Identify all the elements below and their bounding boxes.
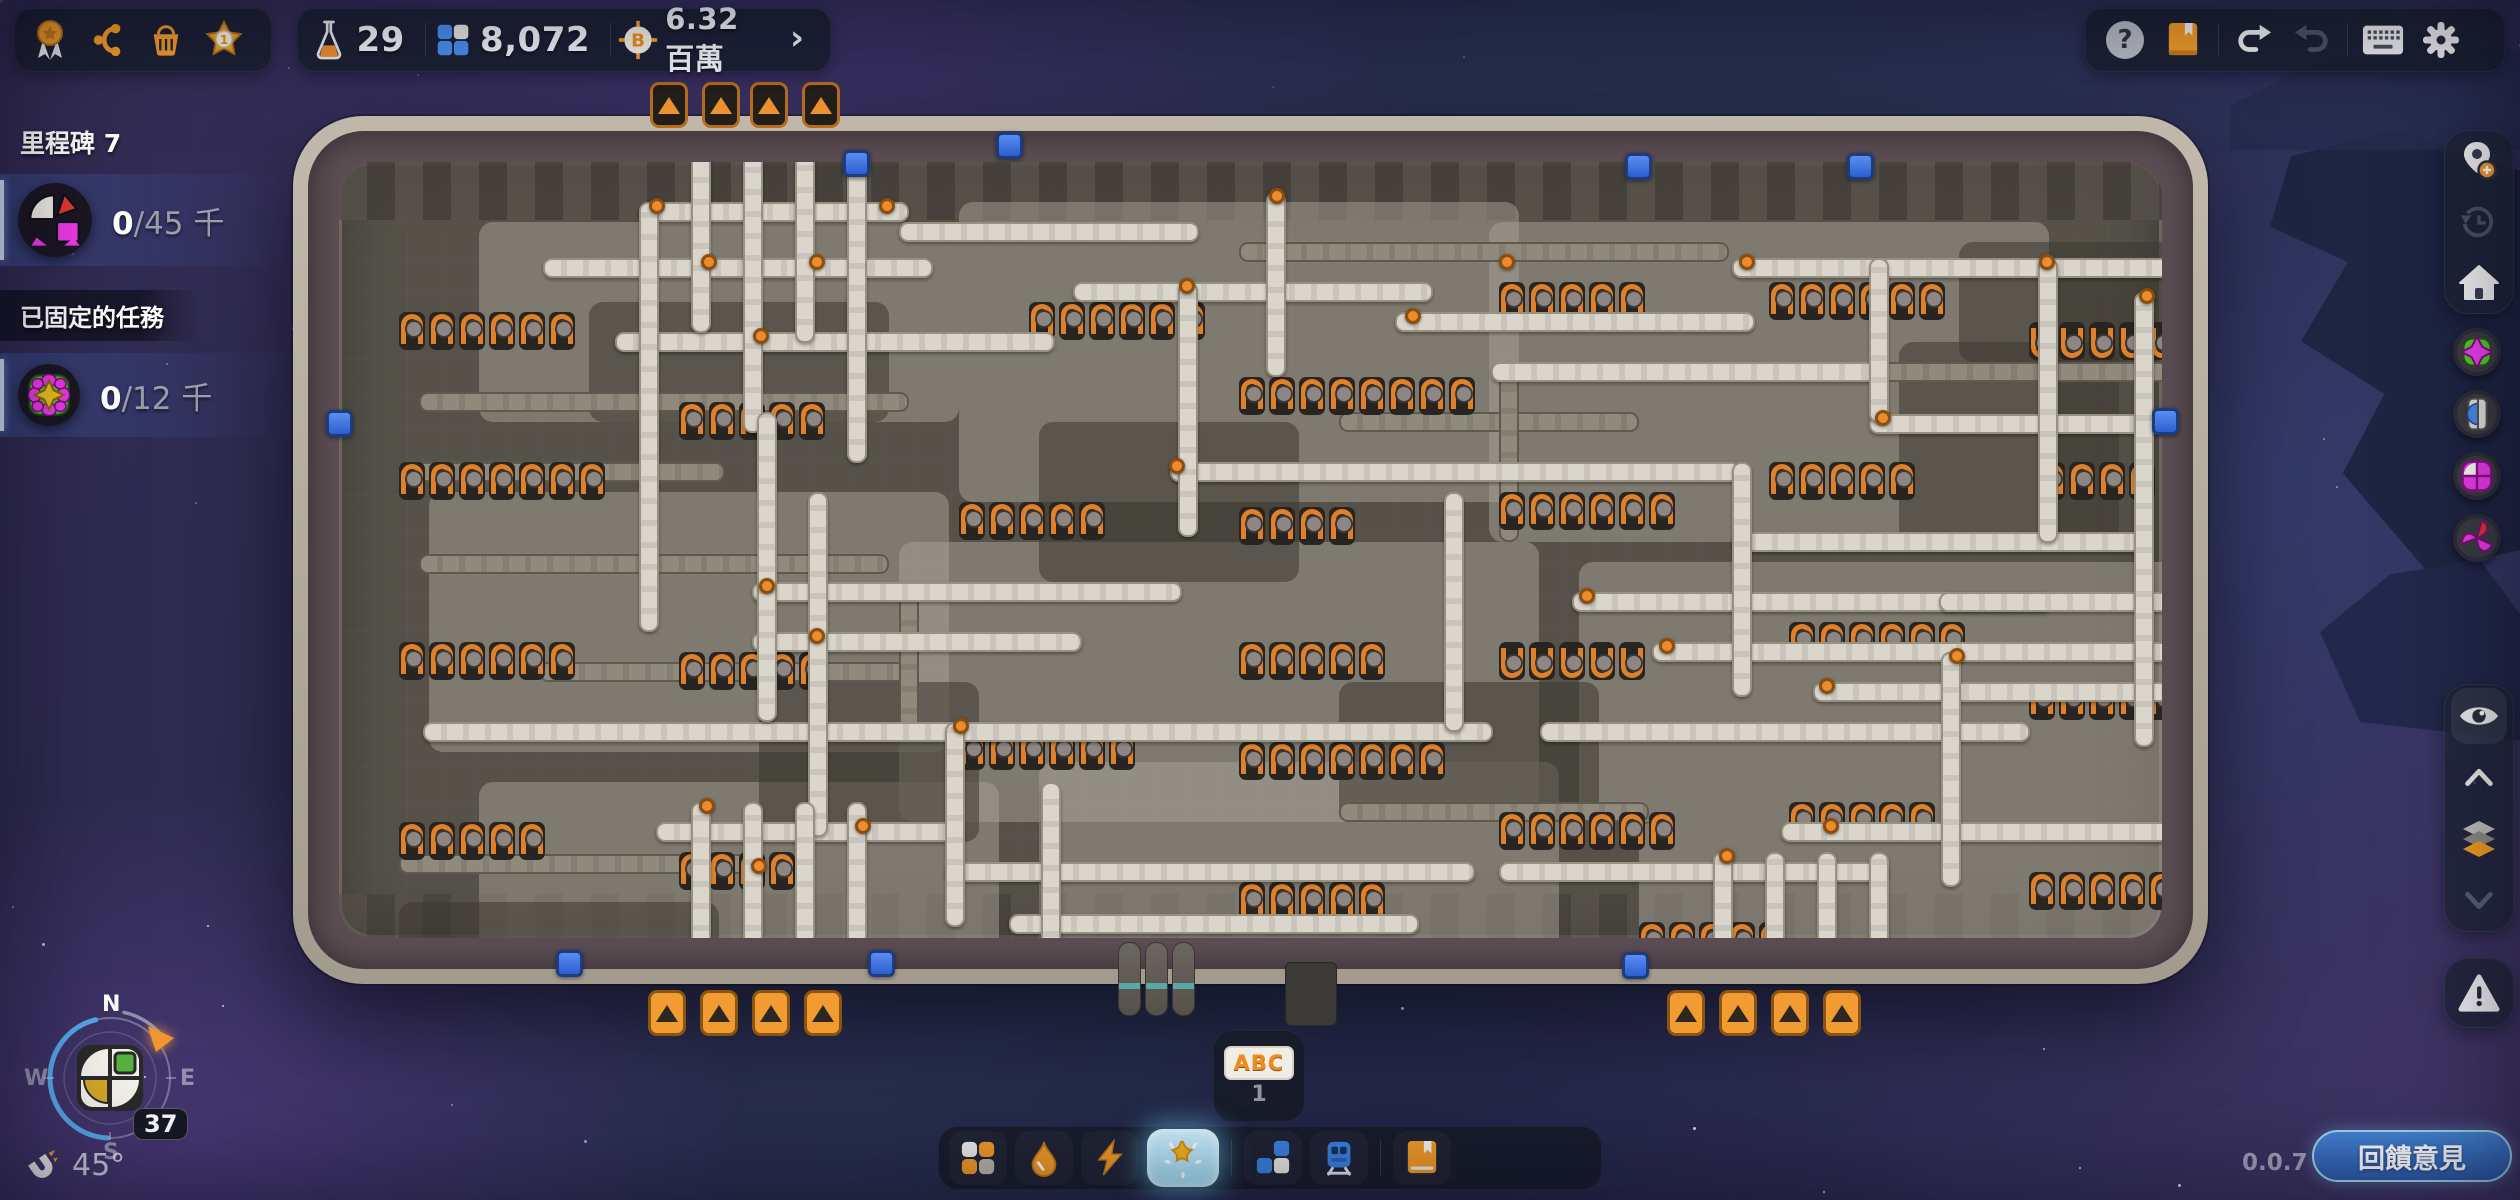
layers-icon[interactable]: [2451, 811, 2507, 867]
research-flask-icon: [308, 12, 350, 68]
conveyor-belt: [1732, 462, 1752, 697]
output-port: [1719, 990, 1757, 1036]
input-port: [802, 82, 840, 128]
edge-bracket: [1285, 962, 1337, 1026]
star: [12, 906, 14, 908]
pinned-task-row[interactable]: 0/12 千: [0, 353, 320, 437]
machine-unit: [1499, 642, 1525, 680]
machine-unit: [399, 312, 425, 350]
machine-unit: [1559, 812, 1585, 850]
floor-patch: [1039, 422, 1299, 582]
star: [1401, 1007, 1404, 1010]
conveyor-belt: [615, 332, 1055, 352]
conveyor-belt: [808, 492, 828, 837]
conveyor-belt: [1765, 852, 1785, 938]
machine-unit: [549, 642, 575, 680]
version-label: 0.0.7: [2242, 1150, 2308, 1176]
edge-marker: [1847, 153, 1874, 180]
machine-unit: [1119, 302, 1145, 340]
conveyor-belt: [639, 202, 909, 222]
conveyor-belt: [1239, 242, 1729, 262]
compass-west: W: [24, 1066, 48, 1091]
conveyor-belt: [743, 162, 763, 433]
machine-unit: [769, 852, 795, 890]
machine-unit: [1299, 377, 1325, 415]
star: [584, 1140, 587, 1143]
machine-unit: [519, 462, 545, 500]
progress-goal: /12 千: [122, 381, 213, 417]
belt-junction-dot: [2139, 288, 2155, 304]
belt-junction-dot: [1659, 638, 1675, 654]
machine-unit: [2119, 872, 2145, 910]
belt-junction-dot: [649, 198, 665, 214]
compass-north: N: [102, 992, 120, 1017]
machine-unit: [1829, 462, 1855, 500]
machine-unit: [1419, 742, 1445, 780]
conveyor-belt: [2134, 292, 2154, 747]
machine-unit: [1829, 282, 1855, 320]
machine-unit: [1529, 492, 1555, 530]
machine-unit: [709, 852, 735, 890]
divider: [2218, 23, 2219, 57]
conveyor-belt: [543, 258, 933, 278]
conveyor-belt: [757, 412, 777, 722]
machine-unit: [2089, 872, 2115, 910]
output-port: [1771, 990, 1809, 1036]
machine-unit: [1559, 642, 1585, 680]
shop-basket-icon[interactable]: [137, 12, 195, 68]
machine-unit: [1299, 642, 1325, 680]
belt-junction-dot: [1719, 848, 1735, 864]
machine-unit: [1329, 377, 1355, 415]
slot-number: 1: [1251, 1082, 1266, 1107]
conveyor-belt: [1869, 852, 1889, 938]
machine-unit: [1889, 282, 1915, 320]
edge-marker: [1622, 952, 1649, 979]
machine-unit: [1619, 642, 1645, 680]
machine-unit: [399, 822, 425, 860]
shapes-storage-icon: [432, 12, 474, 68]
game-viewport[interactable]: [293, 116, 2208, 984]
machine-unit: [1269, 742, 1295, 780]
belt-junction-dot: [1819, 678, 1835, 694]
divider: [610, 23, 611, 57]
machine-unit: [1269, 642, 1295, 680]
machine-unit: [429, 312, 455, 350]
wiki-tool-icon[interactable]: [1393, 1131, 1451, 1185]
machine-unit: [1529, 642, 1555, 680]
fluids-tool-icon[interactable]: [1015, 1131, 1073, 1185]
star: [207, 925, 209, 927]
rotation-readout: 45°: [24, 1148, 125, 1183]
conveyor-belt: [691, 802, 711, 938]
belt-junction-dot: [1949, 648, 1965, 664]
currency-coin-icon: B: [617, 12, 659, 68]
output-port: [1823, 990, 1861, 1036]
svg-text:B: B: [631, 30, 645, 51]
star: [195, 502, 197, 504]
machine-unit: [489, 312, 515, 350]
machine-unit: [709, 652, 735, 690]
progress-goal: /45 千: [134, 206, 225, 242]
edge-marker: [843, 150, 870, 177]
machine-unit: [1299, 507, 1325, 545]
machine-unit: [429, 642, 455, 680]
task-progress: 0/12 千: [100, 373, 212, 418]
star: [451, 1104, 453, 1106]
layer-down-icon: [2451, 872, 2507, 928]
conveyor-belt: [1652, 642, 2162, 662]
machine-unit: [2029, 872, 2055, 910]
machine-unit: [1449, 377, 1475, 415]
star: [222, 1005, 224, 1007]
machine-unit: [959, 502, 985, 540]
machine-unit: [489, 642, 515, 680]
machine-unit: [459, 312, 485, 350]
shape-badge-half-blue[interactable]: [2453, 390, 2501, 438]
edge-marker: [2152, 408, 2179, 435]
progress-value: 0: [100, 381, 122, 417]
conveyor-belt: [1170, 462, 1740, 482]
input-port: [702, 82, 740, 128]
expand-chevron-icon[interactable]: ›: [790, 18, 804, 58]
build-toolbar: [938, 1126, 1602, 1190]
warning-box: [2444, 958, 2514, 1028]
star: [288, 67, 290, 69]
edge-marker: [326, 410, 353, 437]
machine-unit: [459, 462, 485, 500]
layer-up-icon[interactable]: [2451, 749, 2507, 805]
conveyor-belt: [945, 862, 1475, 882]
machine-unit: [1859, 462, 1885, 500]
machine-unit: [519, 642, 545, 680]
machine-unit: [579, 462, 605, 500]
machine-unit: [1619, 492, 1645, 530]
edge-marker: [1625, 153, 1652, 180]
star: [1823, 1191, 1825, 1193]
belt-junction-dot: [1823, 818, 1839, 834]
belt-junction-dot: [1169, 458, 1185, 474]
machine-unit: [1799, 282, 1825, 320]
machine-unit: [1049, 502, 1075, 540]
conveyor-belt: [899, 592, 919, 732]
undo-icon[interactable]: [2225, 12, 2283, 68]
level-badge: 37: [133, 1108, 188, 1140]
star: [1693, 1127, 1696, 1130]
conveyor-belt: [1869, 414, 2162, 434]
medal-icon[interactable]: [21, 12, 79, 68]
conveyor-belt: [953, 722, 1493, 742]
machine-unit: [1619, 812, 1645, 850]
help-icon[interactable]: ?: [2096, 12, 2154, 68]
belt-junction-dot: [1739, 254, 1755, 270]
output-port: [700, 990, 738, 1036]
conveyor-belt: [1444, 492, 1464, 732]
star: [417, 74, 419, 76]
machine-unit: [1639, 922, 1665, 938]
belt-junction-dot: [1405, 308, 1421, 324]
machine-unit: [549, 312, 575, 350]
machine-unit: [1059, 302, 1085, 340]
machine-unit: [1239, 507, 1265, 545]
star: [2079, 1167, 2081, 1169]
machine-unit: [1079, 502, 1105, 540]
conveyor-belt: [752, 632, 1082, 652]
history-icon: [2451, 194, 2507, 250]
research-count: 29: [356, 20, 404, 60]
game-window: 1 29 8,072 B 6.32 百萬 › ?: [0, 0, 2520, 1200]
level-star-icon[interactable]: 1: [195, 12, 253, 68]
star: [2043, 1048, 2045, 1050]
star-tool-icon[interactable]: [1147, 1129, 1219, 1187]
machine-unit: [399, 642, 425, 680]
belt-junction-dot: [2039, 254, 2055, 270]
exhaust-pipe: [1118, 942, 1141, 1016]
machine-unit: [1299, 742, 1325, 780]
conveyor-belt: [1339, 412, 1639, 432]
conveyor-belt: [639, 202, 659, 632]
machine-unit: [1329, 642, 1355, 680]
conveyor-belt: [1813, 682, 2162, 702]
machine-unit: [1359, 642, 1385, 680]
machine-unit: [459, 822, 485, 860]
machine-unit: [1559, 492, 1585, 530]
machine-unit: [1359, 742, 1385, 780]
output-port: [1667, 990, 1705, 1036]
machine-unit: [2089, 322, 2115, 360]
machine-unit: [489, 462, 515, 500]
eye-icon[interactable]: [2451, 688, 2507, 744]
machine-unit: [1589, 812, 1615, 850]
belt-junction-dot: [1179, 278, 1195, 294]
divider: [2347, 23, 2348, 57]
star: [1463, 56, 1465, 58]
task-shape-icon: [16, 362, 82, 428]
milestone-shape-icon: [16, 181, 94, 259]
belt-junction-dot: [753, 328, 769, 344]
star: [1272, 86, 1274, 88]
currency-amount: 6.32 百萬: [665, 2, 770, 78]
machine-unit: [1359, 377, 1385, 415]
platforms-tool-icon[interactable]: [1244, 1131, 1302, 1185]
edge-marker: [996, 132, 1023, 159]
conveyor-belt: [1073, 282, 1433, 302]
rotation-angle: 45°: [72, 1148, 125, 1183]
waypoint-add-icon[interactable]: [2451, 133, 2507, 189]
machine-unit: [2059, 322, 2085, 360]
conveyor-belt: [795, 162, 815, 343]
machine-unit: [2069, 462, 2095, 500]
machine-unit: [679, 652, 705, 690]
machine-unit: [1389, 742, 1415, 780]
output-port: [648, 990, 686, 1036]
machine-unit: [1019, 502, 1045, 540]
wiki-book-icon[interactable]: [2154, 12, 2212, 68]
machine-unit: [1889, 462, 1915, 500]
belt-junction-dot: [701, 254, 717, 270]
shapes-tool-icon[interactable]: [949, 1131, 1007, 1185]
star: [2336, 486, 2338, 488]
belt-junction-dot: [809, 254, 825, 270]
belt-junction-dot: [759, 578, 775, 594]
machine-unit: [429, 462, 455, 500]
machine-unit: [549, 462, 575, 500]
machine-unit: [519, 822, 545, 860]
conveyor-belt: [1266, 192, 1286, 377]
output-port: [804, 990, 842, 1036]
edge-marker: [556, 950, 583, 977]
milestone-progress-row[interactable]: 0/45 千: [0, 174, 320, 266]
machine-unit: [1499, 812, 1525, 850]
svg-text:1: 1: [220, 32, 229, 47]
machine-unit: [1769, 462, 1795, 500]
star: [2178, 1184, 2181, 1187]
conveyor-belt: [1732, 532, 2142, 552]
magnet-snap-icon[interactable]: [24, 1149, 58, 1183]
machine-unit: [2059, 872, 2085, 910]
machine-unit: [1529, 812, 1555, 850]
star: [0, 0, 3, 3]
output-port: [752, 990, 790, 1036]
machine-unit: [519, 312, 545, 350]
conveyor-belt: [1939, 592, 2162, 612]
machine-unit: [1649, 812, 1675, 850]
belt-junction-dot: [879, 198, 895, 214]
row-accent: [0, 180, 4, 260]
machine-unit: [459, 642, 485, 680]
system-bar: ?: [2085, 8, 2505, 72]
conveyor-belt: [1869, 258, 1889, 423]
redo-icon: [2283, 12, 2341, 68]
belt-junction-dot: [1499, 254, 1515, 270]
conveyor-belt: [2038, 258, 2058, 543]
platform-floor: [339, 162, 2162, 938]
belt-junction-dot: [855, 818, 871, 834]
machine-unit: [399, 462, 425, 500]
progress-value: 0: [112, 206, 134, 242]
conveyor-belt: [899, 222, 1199, 242]
machine-unit: [429, 822, 455, 860]
conveyor-belt: [1491, 362, 1881, 382]
conveyor-belt: [423, 722, 1003, 742]
home-platform-shape-icon: [74, 1042, 146, 1114]
machine-unit: [1389, 377, 1415, 415]
divider: [425, 23, 426, 57]
belt-junction-dot: [1875, 410, 1891, 426]
edge-marker: [868, 950, 895, 977]
machine-unit: [1329, 507, 1355, 545]
machine-unit: [1769, 282, 1795, 320]
compass[interactable]: N E S W 37: [32, 1000, 188, 1156]
shape-badge-windows-magenta[interactable]: [2453, 452, 2501, 500]
shapes-count: 8,072: [480, 20, 590, 60]
machine-unit: [1239, 377, 1265, 415]
belt-junction-dot: [1579, 588, 1595, 604]
settings-gear-icon[interactable]: [2412, 12, 2470, 68]
machine-unit: [1269, 507, 1295, 545]
conveyor-belt: [847, 162, 867, 463]
machine-unit: [709, 402, 735, 440]
star: [42, 943, 45, 946]
machine-unit: [1329, 742, 1355, 780]
map-tools-box: [2444, 130, 2514, 314]
warning-icon[interactable]: [2451, 965, 2507, 1021]
conveyor-belt: [1732, 258, 2162, 278]
home-icon[interactable]: [2451, 255, 2507, 311]
milestone-panel: 里程碑 7 0/45 千 已固定的任務 0/12 千: [0, 124, 320, 443]
keyboard-icon[interactable]: [2354, 12, 2412, 68]
milestones-curve-icon[interactable]: [79, 12, 137, 68]
belt-junction-dot: [699, 798, 715, 814]
view-tools-box: [2444, 684, 2514, 932]
shape-badge-pin-green[interactable]: [2453, 328, 2501, 376]
machine-unit: [1089, 302, 1115, 340]
label-tool-icon: ABC: [1224, 1046, 1295, 1080]
belt-junction-dot: [809, 628, 825, 644]
divider: [1231, 1140, 1232, 1176]
machine-unit: [1669, 922, 1695, 938]
pinned-tasks-title: 已固定的任務: [0, 290, 198, 341]
conveyor-belt: [1178, 282, 1198, 537]
machine-unit: [1239, 742, 1265, 780]
hotbar-slot-label[interactable]: ABC 1: [1213, 1030, 1305, 1122]
machine-unit: [1589, 642, 1615, 680]
resource-bar: 29 8,072 B 6.32 百萬 ›: [297, 8, 831, 72]
main-menu-bar: 1: [14, 8, 272, 72]
compass-east: E: [180, 1066, 195, 1091]
row-accent: [0, 359, 4, 431]
machine-unit: [1419, 377, 1445, 415]
machine-unit: [799, 402, 825, 440]
conveyor-belt: [1395, 312, 1755, 332]
trains-tool-icon[interactable]: [1310, 1131, 1368, 1185]
machine-unit: [1919, 282, 1945, 320]
input-port: [750, 82, 788, 128]
conveyor-belt: [1713, 852, 1733, 938]
conveyor-belt: [1941, 652, 1961, 887]
machine-unit: [2149, 872, 2162, 910]
machine-unit: [1499, 492, 1525, 530]
conveyor-belt: [945, 722, 965, 927]
machine-unit: [679, 402, 705, 440]
machine-unit: [1269, 377, 1295, 415]
floor-patch: [399, 902, 719, 938]
belt-junction-dot: [1269, 188, 1285, 204]
machine-unit: [989, 502, 1015, 540]
machine-unit: [1799, 462, 1825, 500]
feedback-button[interactable]: 回饋意見: [2312, 1130, 2512, 1182]
machine-unit: [489, 822, 515, 860]
milestone-progress: 0/45 千: [112, 198, 224, 243]
divider: [1380, 1140, 1381, 1176]
machine-unit: [1649, 492, 1675, 530]
machine-unit: [2099, 462, 2125, 500]
shape-badge-pinwheel[interactable]: [2453, 514, 2501, 562]
conveyor-belt: [691, 162, 711, 333]
input-port: [650, 82, 688, 128]
machine-unit: [1149, 302, 1175, 340]
milestone-title: 里程碑 7: [20, 124, 320, 160]
conveyor-belt: [1817, 852, 1837, 938]
conveyor-belt: [419, 392, 909, 412]
belt-junction-dot: [953, 718, 969, 734]
exhaust-pipe: [1172, 942, 1195, 1016]
power-tool-icon[interactable]: [1081, 1131, 1139, 1185]
conveyor-belt: [1009, 914, 1419, 934]
conveyor-belt: [1041, 782, 1061, 938]
star: [2323, 438, 2325, 440]
conveyor-belt: [795, 802, 815, 938]
